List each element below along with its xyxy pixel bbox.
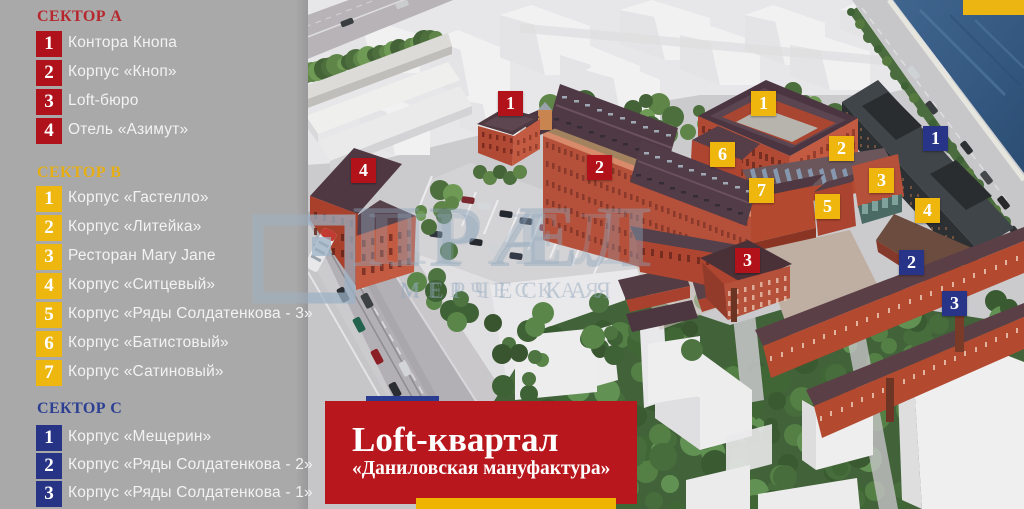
svg-text:МЕРЧЕСКАЯ: МЕРЧЕСКАЯ: [400, 278, 620, 303]
svg-text:ПРÆЛ: ПРÆЛ: [352, 189, 660, 286]
